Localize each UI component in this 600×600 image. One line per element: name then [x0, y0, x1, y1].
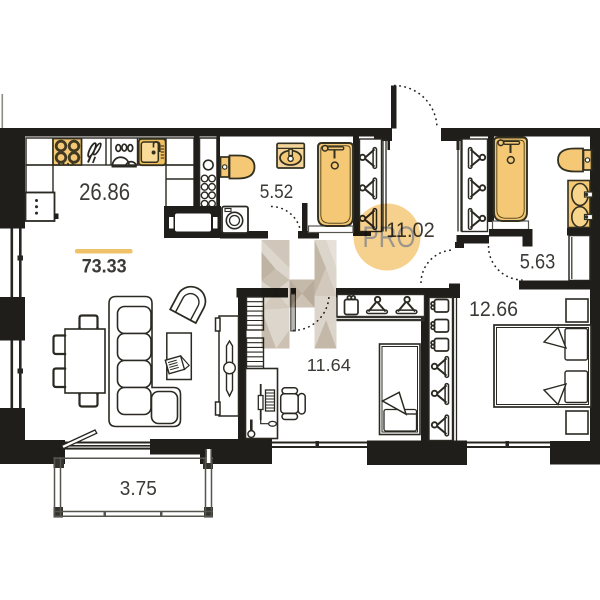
svg-text:PRO: PRO	[363, 221, 416, 254]
svg-text:3.75: 3.75	[120, 477, 157, 500]
svg-text:5.63: 5.63	[520, 250, 556, 274]
svg-text:11.64: 11.64	[307, 355, 351, 375]
svg-text:5.52: 5.52	[260, 181, 294, 203]
svg-text:26.86: 26.86	[79, 179, 130, 206]
svg-text:12.66: 12.66	[469, 297, 518, 321]
svg-text:73.33: 73.33	[82, 256, 127, 278]
